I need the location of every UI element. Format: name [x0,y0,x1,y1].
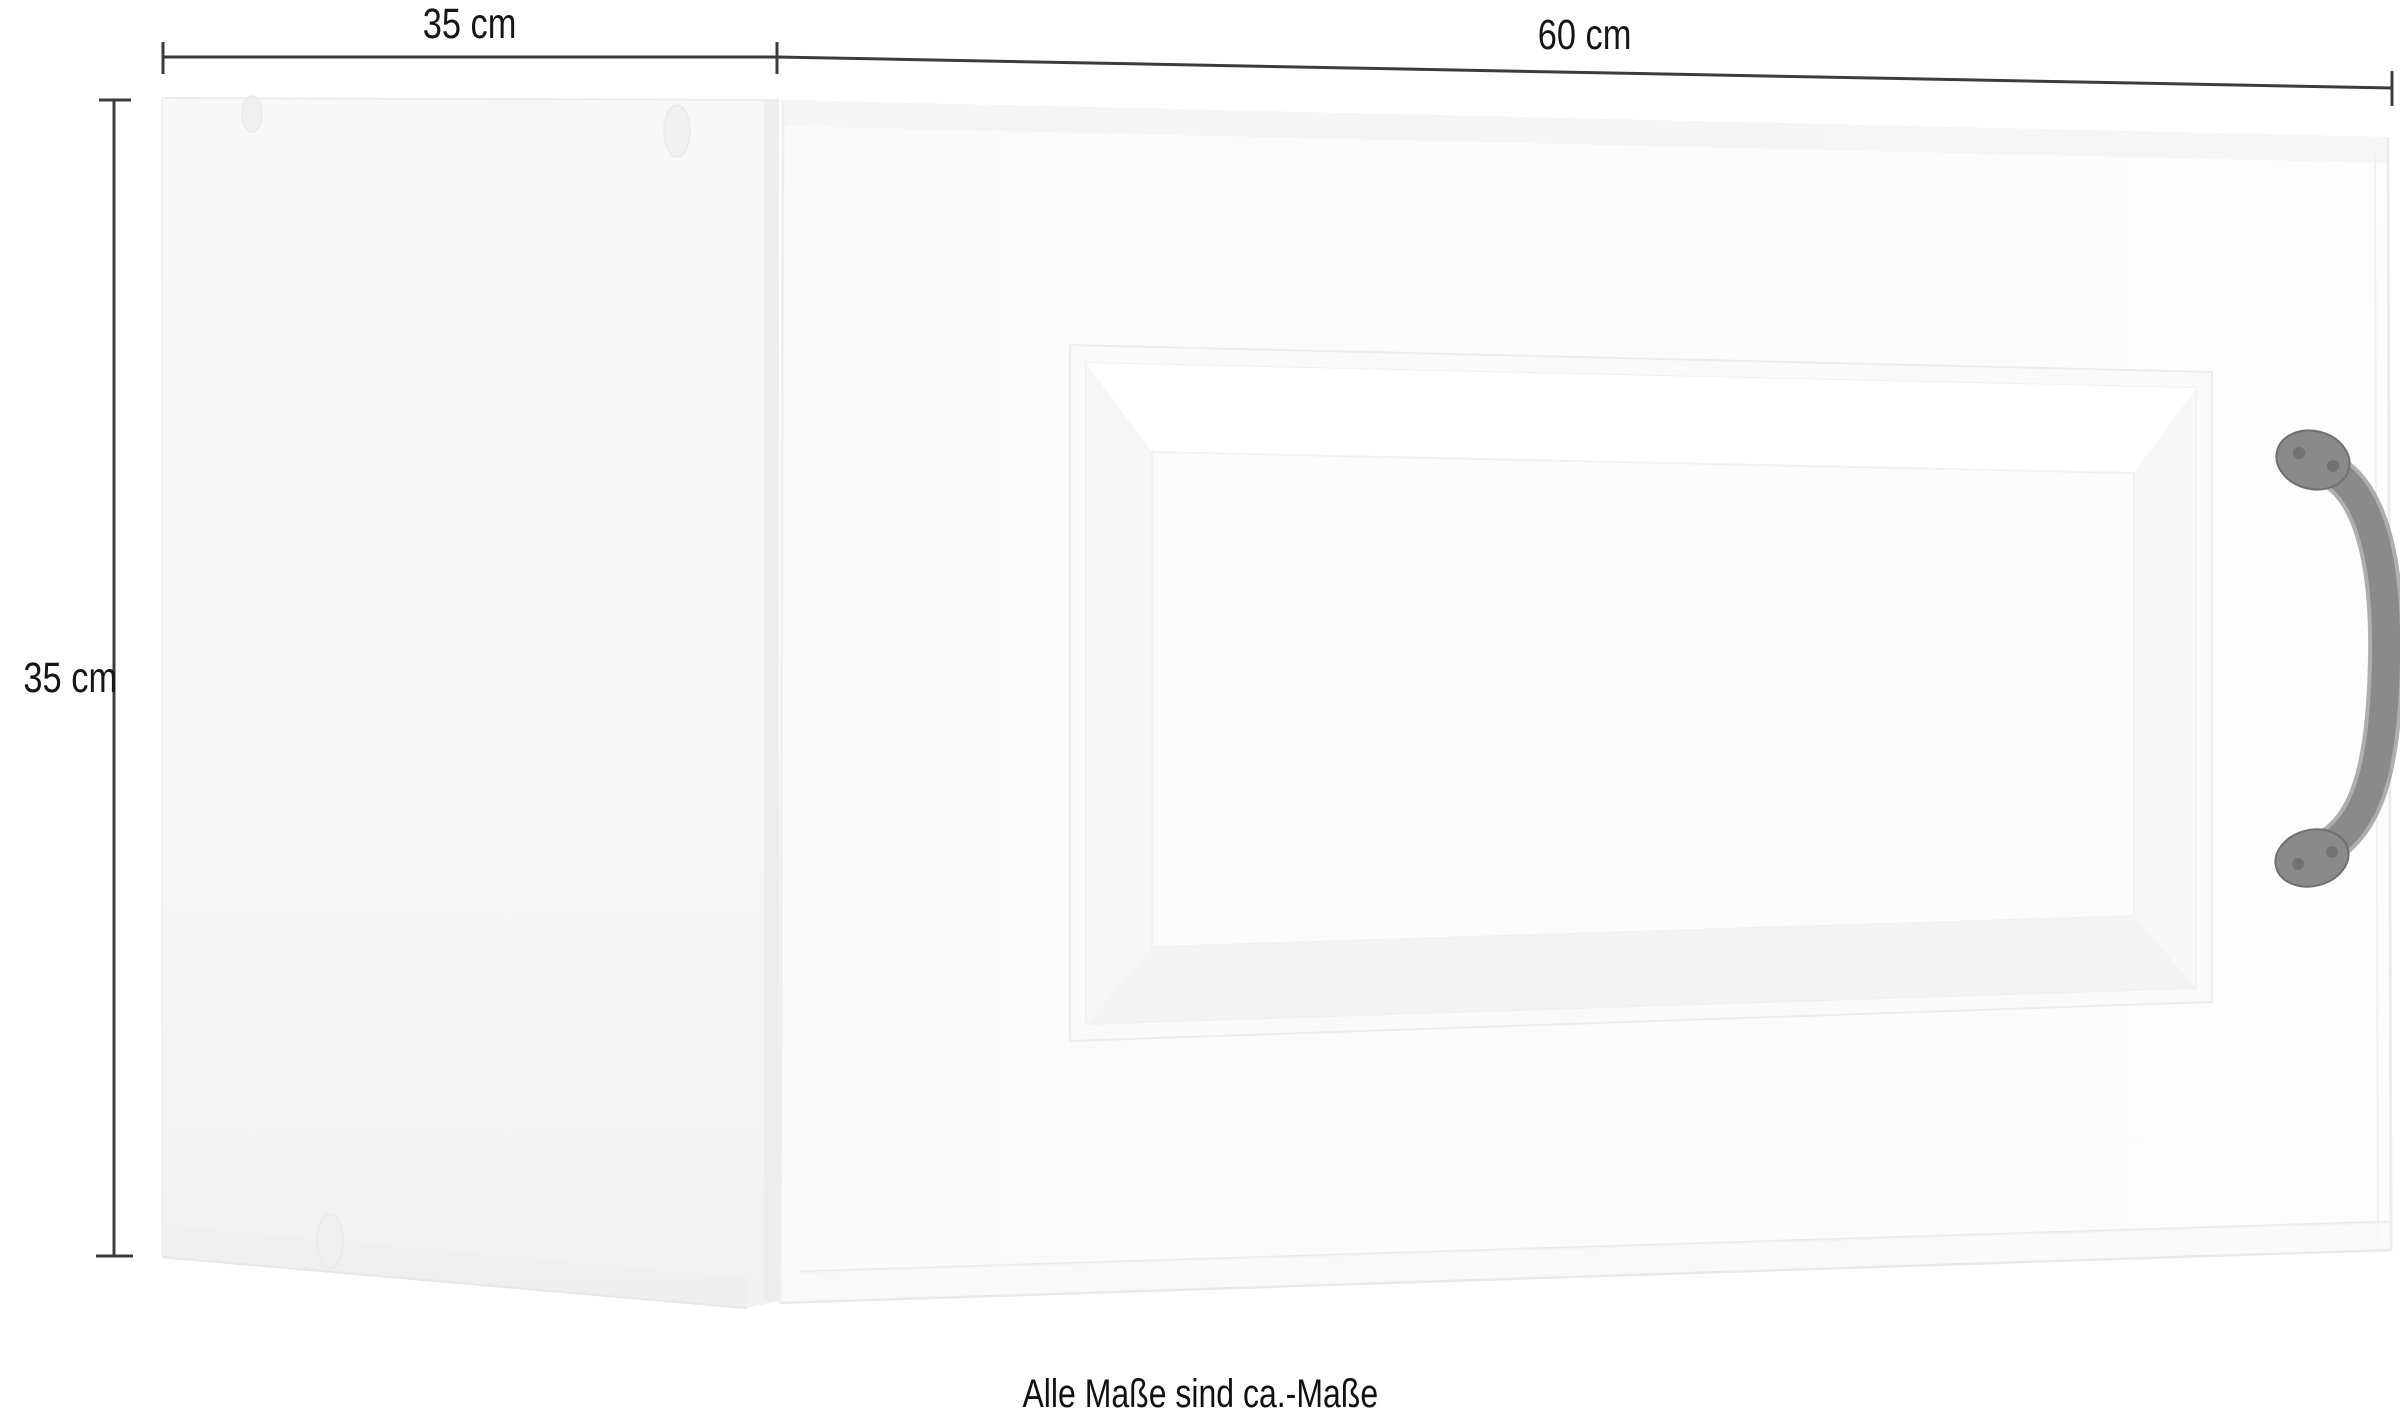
dim-label-height: 35 cm [0,655,92,701]
measurement-note-text: Alle Maße sind ca.-Maße [1022,1372,1378,1416]
door-raised-panel [1070,345,2212,1041]
side-door-junction [764,99,779,1301]
dowel-hole-bottom [317,1214,343,1268]
cabinet-illustration [0,0,2400,1421]
dowel-hole-top-left [242,96,262,132]
cabinet-side-panel [162,98,779,1308]
dim-label-height-text: 35 cm [23,655,117,701]
dim-label-side-depth: 35 cm [163,1,777,47]
handle-screw-top-left [2293,447,2305,459]
product-dimension-image: 35 cm 60 cm 35 cm Alle Maße sind ca.-Maß… [0,0,2400,1421]
dim-label-front-width: 60 cm [777,12,2392,58]
dim-label-side-depth-text: 35 cm [423,1,517,47]
handle-screw-bottom-right [2326,846,2338,858]
dim-line-front-width [777,57,2392,88]
dowel-hole-top-right [664,105,690,157]
cabinet [162,96,2391,1308]
measurement-note: Alle Maße sind ca.-Maße [950,1372,1450,1416]
panel-bevel-right [2134,388,2196,988]
handle-screw-bottom-left [2292,858,2304,870]
panel-bevel-left [1086,363,1152,1024]
handle-screw-top-right [2327,460,2339,472]
panel-raised-center [1152,452,2134,947]
dim-label-front-width-text: 60 cm [1538,12,1632,58]
